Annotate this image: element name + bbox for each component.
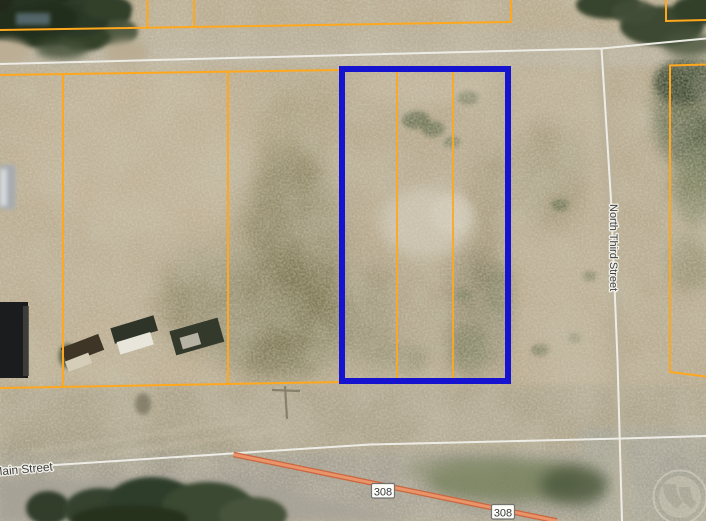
svg-text:308: 308 [374,487,392,499]
svg-text:North Third Street: North Third Street [607,204,619,291]
svg-text:308: 308 [494,508,512,520]
